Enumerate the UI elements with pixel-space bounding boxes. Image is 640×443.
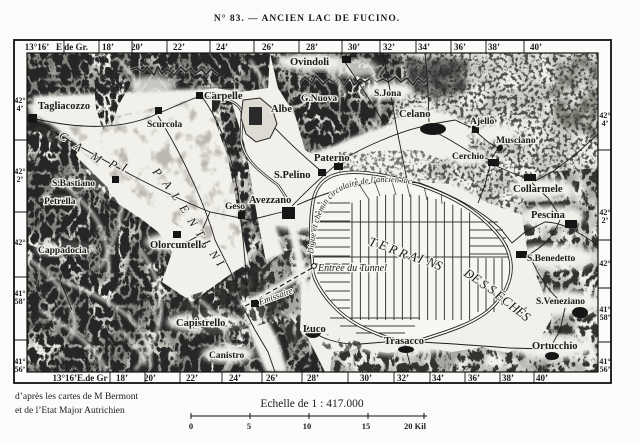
svg-text:56’: 56’ (15, 365, 26, 374)
svg-text:13°16’: 13°16’ (25, 42, 50, 52)
svg-text:38’: 38’ (488, 42, 500, 52)
svg-text:Luco: Luco (303, 324, 326, 335)
svg-text:Celano: Celano (399, 109, 431, 120)
svg-text:34’: 34’ (418, 42, 430, 52)
svg-text:22’: 22’ (186, 373, 198, 383)
svg-text:42°: 42° (14, 238, 25, 247)
svg-text:N° 83. — ANCIEN LAC DE FUCINO.: N° 83. — ANCIEN LAC DE FUCINO. (214, 13, 400, 24)
svg-text:28’: 28’ (306, 42, 318, 52)
svg-text:4’: 4’ (602, 119, 609, 128)
svg-text:Pescina: Pescina (531, 210, 566, 221)
svg-text:2’: 2’ (17, 175, 24, 184)
svg-text:Canistro: Canistro (209, 351, 244, 361)
svg-text:28’: 28’ (307, 373, 319, 383)
svg-text:20’: 20’ (131, 42, 143, 52)
svg-text:Olorcuntello: Olorcuntello (150, 240, 206, 251)
svg-text:G.Nuova: G.Nuova (301, 94, 337, 104)
svg-text:58’: 58’ (600, 313, 611, 322)
svg-text:32’: 32’ (383, 42, 395, 52)
svg-text:34’: 34’ (432, 373, 444, 383)
svg-text:Cerchio: Cerchio (452, 152, 484, 162)
svg-text:30’: 30’ (348, 42, 360, 52)
svg-text:Musciano: Musciano (496, 136, 536, 146)
svg-text:et de l’Etat Major Autrichien: et de l’Etat Major Autrichien (15, 406, 125, 416)
svg-text:Scurcola: Scurcola (147, 120, 182, 130)
svg-text:Avezzano: Avezzano (249, 195, 291, 206)
svg-text:Albe: Albe (271, 104, 292, 115)
svg-text:36’: 36’ (468, 373, 480, 383)
svg-text:4’: 4’ (17, 104, 24, 113)
svg-text:58’: 58’ (15, 297, 26, 306)
svg-text:Carpelle: Carpelle (204, 91, 243, 102)
svg-text:Geso: Geso (225, 202, 245, 212)
svg-text:S.Pelino: S.Pelino (274, 170, 310, 181)
svg-text:18’: 18’ (116, 373, 128, 383)
svg-text:Trasacco: Trasacco (384, 336, 424, 347)
svg-text:18’: 18’ (102, 42, 114, 52)
svg-text:20’: 20’ (144, 373, 156, 383)
svg-text:d’après les cartes de M Bermon: d’après les cartes de M Bermont (15, 392, 139, 402)
svg-text:Ortucchio: Ortucchio (532, 341, 578, 352)
svg-text:26’: 26’ (266, 373, 278, 383)
svg-text:Ovindoli: Ovindoli (290, 57, 329, 68)
svg-text:15: 15 (362, 421, 371, 431)
svg-text:40’: 40’ (530, 42, 542, 52)
svg-text:Paterno: Paterno (314, 153, 350, 164)
svg-text:5: 5 (247, 421, 251, 431)
svg-text:38’: 38’ (502, 373, 514, 383)
svg-text:S.Bastiano: S.Bastiano (52, 179, 95, 189)
svg-text:Ajello: Ajello (470, 117, 495, 127)
svg-text:Cappadocia: Cappadocia (38, 246, 87, 256)
svg-text:42°: 42° (599, 259, 610, 268)
svg-text:S.Veneziano: S.Veneziano (536, 297, 585, 307)
svg-text:Petrella: Petrella (44, 197, 76, 207)
svg-text:Collarmele: Collarmele (513, 184, 563, 195)
svg-text:26’: 26’ (262, 42, 274, 52)
svg-text:32’: 32’ (397, 373, 409, 383)
svg-text:S.Jona: S.Jona (374, 89, 401, 99)
svg-text:36’: 36’ (454, 42, 466, 52)
svg-text:Entrée du Tunnel: Entrée du Tunnel (317, 263, 387, 274)
svg-text:13°16’E.de Gr: 13°16’E.de Gr (52, 373, 107, 383)
svg-text:2’: 2’ (602, 216, 609, 225)
svg-text:S.Benedetto: S.Benedetto (527, 254, 576, 264)
svg-text:20 Kil: 20 Kil (404, 421, 427, 431)
svg-text:Capistrello: Capistrello (176, 318, 225, 329)
svg-text:30’: 30’ (360, 373, 372, 383)
svg-text:40’: 40’ (536, 373, 548, 383)
svg-text:10: 10 (303, 421, 312, 431)
svg-text:Tagliacozzo: Tagliacozzo (38, 101, 90, 112)
svg-text:0: 0 (189, 421, 193, 431)
svg-text:22’: 22’ (173, 42, 185, 52)
svg-text:24’: 24’ (229, 373, 241, 383)
svg-text:E de Gr.: E de Gr. (56, 42, 88, 52)
svg-text:56’: 56’ (600, 365, 611, 374)
svg-text:Echelle de 1 : 417.000: Echelle de 1 : 417.000 (260, 398, 363, 410)
svg-text:24’: 24’ (216, 42, 228, 52)
